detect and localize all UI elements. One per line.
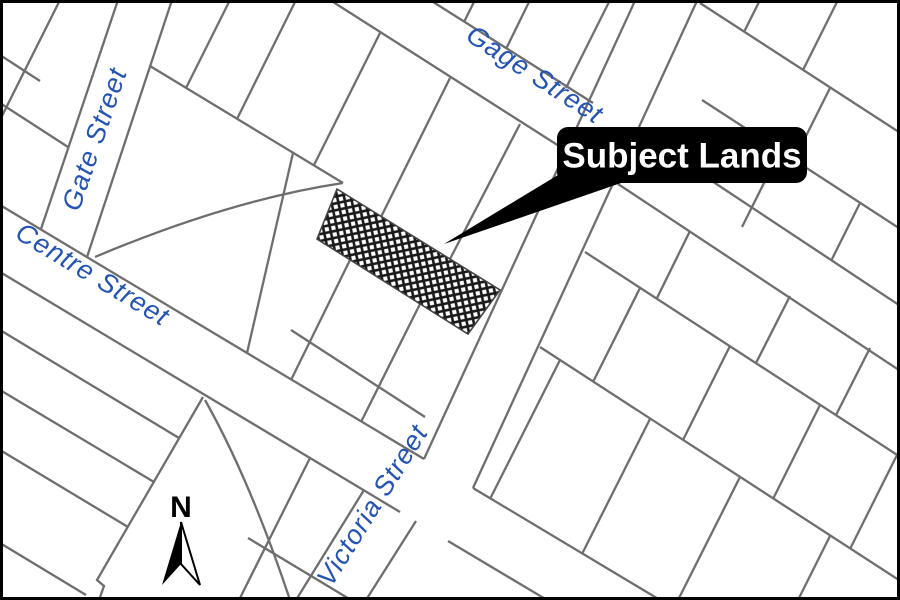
location-map: Subject Lands N Gage StreetGate StreetCe…	[0, 0, 900, 600]
parcel-line	[0, 103, 68, 147]
street-label-gate-street: Gate Street	[56, 63, 133, 214]
parcel-line	[593, 288, 640, 382]
parcel-line	[700, 3, 900, 136]
parcel-boundary-curve	[205, 400, 290, 600]
parcel-line	[0, 330, 179, 438]
parcel-line	[464, 0, 475, 22]
parcel-line	[366, 521, 416, 600]
parcel-line	[836, 348, 870, 415]
north-letter: N	[170, 491, 192, 524]
subject-lands-parcel	[317, 189, 500, 334]
parcel-line	[657, 231, 690, 298]
parcel-boundary-curve	[95, 183, 343, 257]
parcel-line	[381, 78, 450, 217]
parcel-line	[0, 55, 40, 81]
parcel-line	[361, 304, 420, 422]
north-arrow: N	[162, 491, 200, 585]
parcel-line	[0, 450, 128, 527]
parcel-line	[0, 272, 400, 512]
north-arrow-left-half	[162, 522, 181, 585]
parcel-line	[291, 330, 425, 417]
parcel-line	[683, 346, 730, 440]
parcel-line	[0, 543, 86, 595]
street-label-gage-street: Gage Street	[461, 19, 609, 130]
parcel-line	[237, 0, 296, 119]
parcel-line	[540, 347, 900, 584]
parcel-line	[850, 455, 897, 549]
parcel-line	[756, 296, 790, 363]
subject-lands-callout: Subject Lands	[444, 127, 807, 244]
parcel-line	[450, 124, 520, 259]
parcel-line	[150, 66, 343, 183]
street-labels: Gage StreetGate StreetCentre StreetVicto…	[11, 19, 610, 591]
parcel-line	[247, 153, 293, 353]
parcel-line	[831, 203, 860, 261]
parcel-line	[773, 405, 820, 499]
parcel-line	[239, 458, 310, 600]
parcel-line	[314, 33, 380, 165]
callout-label: Subject Lands	[562, 137, 801, 176]
parcel-line	[678, 477, 740, 600]
map-canvas: Subject Lands N Gage StreetGate StreetCe…	[0, 0, 900, 600]
parcel-line	[186, 0, 230, 88]
parcel-line	[0, 390, 154, 482]
parcel-line	[744, 0, 760, 32]
parcel-line	[798, 536, 830, 600]
parcel-line	[566, 0, 610, 88]
parcel-line	[585, 252, 900, 460]
north-arrow-right-half	[181, 522, 200, 585]
parcel-line	[448, 541, 547, 600]
parcel-line	[803, 0, 838, 70]
street-label-victoria-street: Victoria Street	[311, 419, 434, 591]
parcel-line	[582, 419, 650, 554]
subject-parcel-hatch	[317, 189, 500, 334]
parcel-line	[473, 488, 660, 600]
